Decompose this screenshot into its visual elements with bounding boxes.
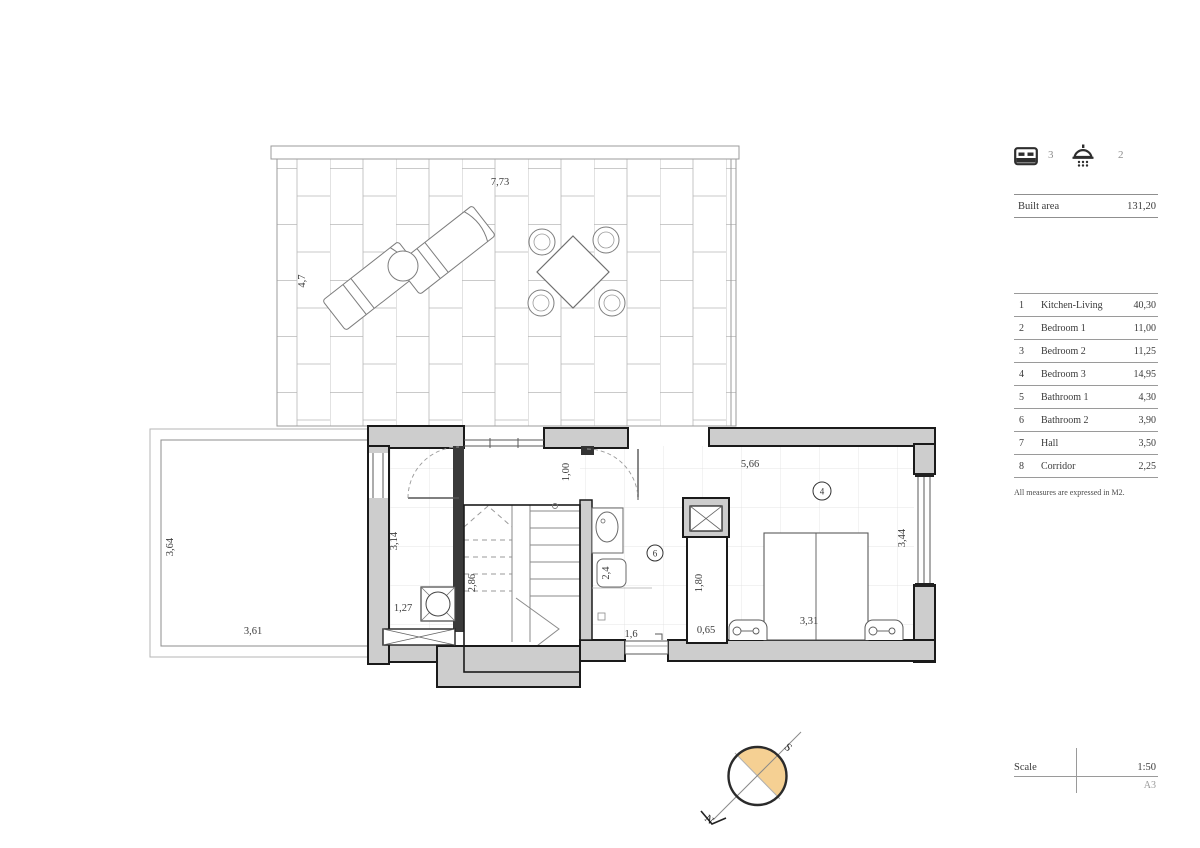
room-number: 2 [1014,323,1033,334]
chair [593,227,619,253]
room-area: 14,95 [1122,369,1158,380]
dim-solarium-depth: 3,64 [165,537,176,556]
floor-plan-sheet: 7,73 4,7 [0,0,1200,848]
table-row: 3 Bedroom 2 11,25 [1014,340,1158,363]
wall-top-middle [544,428,628,448]
dim-terrace-width: 7,73 [491,177,509,188]
measures-note: All measures are expressed in M2. [1014,488,1158,497]
wall-top-right [709,428,935,446]
room-number: 1 [1014,300,1033,311]
built-area-label: Built area [1014,201,1059,212]
room-name: Bedroom 1 [1033,323,1122,334]
scale-block: Scale 1:50 A3 [1014,748,1158,794]
room-name: Bathroom 1 [1033,392,1122,403]
chair [599,290,625,316]
dim-stairs-depth: 2,86 [467,574,478,592]
room-area: 3,50 [1122,438,1158,449]
dim-shower: 2,4 [601,566,612,580]
table-row: 1 Kitchen-Living 40,30 [1014,294,1158,317]
terrace-top-wall [271,146,739,159]
terrace: 7,73 4,7 [271,146,739,426]
wall-stair-bulge [437,646,580,687]
room-area: 2,25 [1122,461,1158,472]
built-area-value: 131,20 [1127,201,1158,212]
feature-icons-row: 3 2 [1014,144,1158,170]
room-number: 8 [1014,461,1033,472]
side-table [388,251,418,281]
room-name: Bathroom 2 [1033,415,1122,426]
sheet-size: A3 [1144,780,1156,791]
compass-rose: S N [701,732,801,827]
dim-closet-depth: 1,80 [694,574,705,592]
compass-south-label: S [782,741,794,754]
room-name: Kitchen-Living [1033,300,1122,311]
table-row: 5 Bathroom 1 4,30 [1014,386,1158,409]
room-name: Hall [1033,438,1122,449]
dim-utility-depth: 3,14 [389,531,400,550]
bed-icon [1014,147,1038,166]
dim-solarium-width: 3,61 [244,626,262,637]
room-area: 11,00 [1122,323,1158,334]
sink-basin [596,512,618,542]
dim-terrace-depth: 4,7 [297,274,308,287]
room-number: 3 [1014,346,1033,357]
table-row: 6 Bathroom 2 3,90 [1014,409,1158,432]
window-top [464,438,544,448]
room-area-table: 1 Kitchen-Living 40,30 2 Bedroom 1 11,00… [1014,293,1158,478]
closet: 1,80 0,65 [683,498,729,643]
room-area: 4,30 [1122,392,1158,403]
dim-bed-width: 3,31 [800,616,818,627]
wall-bathroom-left [580,500,592,640]
chair [528,290,554,316]
table-row: 7 Hall 3,50 [1014,432,1158,455]
wall-notch [581,446,594,455]
table-row: 4 Bedroom 3 14,95 [1014,363,1158,386]
room-name: Bedroom 2 [1033,346,1122,357]
dim-bath-width: 1,6 [624,629,637,640]
nightstand [729,620,767,640]
room-area: 3,90 [1122,415,1158,426]
room-number: 5 [1014,392,1033,403]
washing-machine [421,587,455,621]
room-area: 40,30 [1122,300,1158,311]
wall-top-left [368,426,464,448]
scale-label: Scale [1014,762,1037,776]
wall-right-upper [914,444,935,474]
room-number: 7 [1014,438,1033,449]
scale-value: 1:50 [1137,762,1158,776]
dim-hall-width: 1,00 [561,463,572,481]
wall-bottom-bath [580,640,625,661]
room-area: 11,25 [1122,346,1158,357]
table-row: 2 Bedroom 1 11,00 [1014,317,1158,340]
dim-bedroom-depth: 3,44 [897,528,908,547]
bedrooms-count: 3 [1048,149,1054,161]
window-left [369,453,388,498]
room-name: Corridor [1033,461,1122,472]
dim-bedroom-width: 5,66 [741,459,759,470]
dim-utility-width: 1,27 [394,603,412,614]
built-area-row: Built area 131,20 [1014,194,1158,218]
drain [598,613,605,620]
bathrooms-count: 2 [1118,149,1124,161]
shower-icon [1070,144,1096,169]
room-marker-bathroom2: 6 [653,549,658,559]
room-number: 6 [1014,415,1033,426]
window-bedroom-right [915,473,934,587]
dim-closet-width: 0,65 [697,625,715,636]
table-row: 8 Corridor 2,25 [1014,455,1158,478]
nightstand [865,620,903,640]
room-marker-bedroom3: 4 [820,487,825,497]
solarium: 3,64 3,61 [150,429,378,657]
chair [529,229,555,255]
room-number: 4 [1014,369,1033,380]
room-name: Bedroom 3 [1033,369,1122,380]
shelf-crossed [383,629,455,645]
